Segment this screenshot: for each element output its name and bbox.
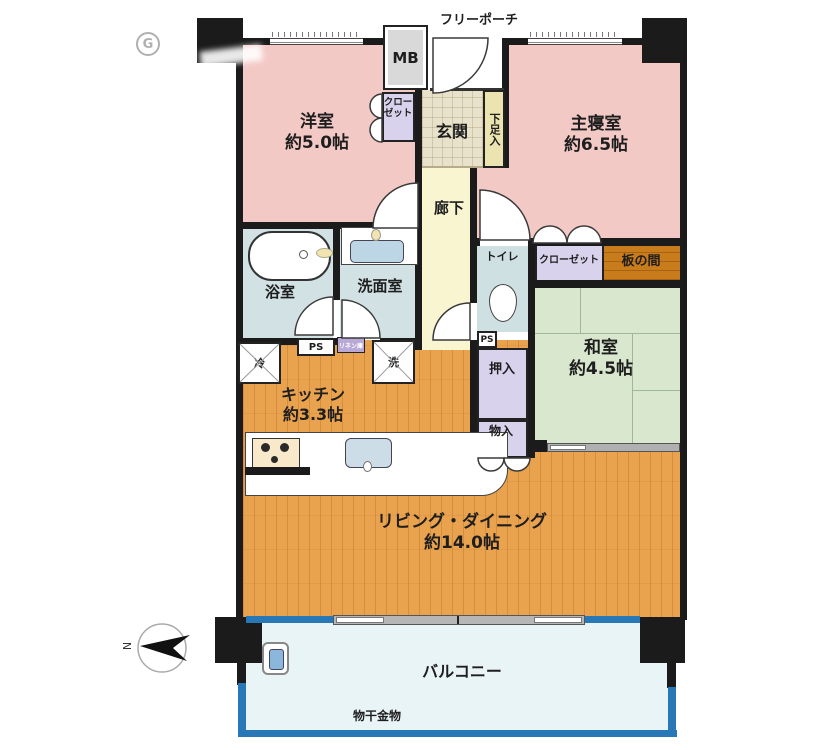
storage-name: 板の間 (621, 254, 660, 270)
wall (528, 238, 535, 458)
tatami-line (580, 288, 581, 333)
window-ticks (272, 32, 360, 37)
hallway-label: 廊下 (434, 199, 464, 218)
wood-alcove-label: 板の間 (621, 254, 660, 270)
window-western (270, 38, 363, 45)
room-name: 洗面室 (357, 277, 402, 296)
wall (680, 45, 687, 620)
hatch-inner (269, 649, 284, 670)
balcony-sliding-door (333, 615, 585, 625)
refrigerator-space: 冷 (238, 342, 281, 384)
entrance-step-line (422, 166, 483, 168)
sliding-pane (534, 617, 582, 623)
balcony-wall-right (668, 687, 676, 737)
room-master-bedroom-ext (477, 168, 508, 238)
pillar (642, 18, 687, 63)
free-porch-text: フリーポーチ (440, 13, 518, 29)
laundry-hardware-label: 物干金物 (353, 709, 401, 724)
toilet-label: トイレ (486, 250, 519, 264)
washroom-label: 洗面室 (357, 277, 402, 296)
room-size: 約5.0帖 (285, 133, 349, 154)
ps-label: PS (480, 335, 493, 345)
burner (261, 443, 270, 452)
wall (470, 168, 477, 303)
kitchen-sink-faucet (363, 461, 372, 472)
window-ticks (530, 32, 618, 37)
evacuation-hatch-icon (262, 642, 289, 675)
room-name: 和室 (569, 338, 633, 359)
linen-label: リネン庫 (339, 341, 363, 350)
hallway (422, 168, 470, 350)
room-size: 約3.3帖 (281, 405, 345, 425)
shoe-cabinet-label: 下足入 (486, 113, 502, 146)
japanese-room-label: 和室 約4.5帖 (569, 338, 633, 381)
balcony-wall-left (238, 683, 246, 737)
wall (237, 663, 246, 685)
balcony-wall-top-left (246, 616, 333, 623)
kitchen-label: キッチン 約3.3帖 (281, 385, 345, 425)
western-room-label: 洋室 約5.0帖 (285, 112, 349, 155)
small-storage-label: 物入 (489, 424, 513, 439)
closet-western-label: クローゼット (383, 98, 413, 120)
washer-label: 洗 (387, 354, 400, 370)
wall (667, 663, 676, 688)
wall (333, 228, 340, 300)
linen-cabinet: リネン庫 (337, 337, 365, 353)
compass-icon: N (121, 624, 190, 672)
window-master (528, 38, 622, 45)
sliding-pane (336, 617, 384, 623)
watermark-letter: G (143, 37, 154, 52)
pillar (640, 617, 685, 663)
bathroom-label: 浴室 (265, 283, 295, 302)
sliding-divider (457, 616, 459, 624)
room-name: トイレ (486, 250, 519, 264)
storage-name: クローゼット (539, 255, 599, 268)
room-name: 浴室 (265, 283, 295, 302)
compass-north-label: N (121, 642, 134, 650)
sliding-pane (550, 445, 586, 450)
futon-closet-oshiire (477, 348, 528, 420)
shoe-cabinet: 下足入 (483, 90, 505, 168)
wall (236, 45, 243, 617)
room-name: 玄関 (436, 122, 468, 142)
pillar (215, 617, 262, 663)
room-name: バルコニー (422, 662, 502, 682)
burner (271, 456, 278, 463)
bathtub-drain (299, 250, 308, 259)
room-name: キッチン (281, 385, 345, 405)
front-door-arc (433, 38, 488, 93)
storage-name: クローゼット (383, 98, 413, 120)
entrance-label: 玄関 (436, 122, 468, 142)
refrigerator-label: 冷 (253, 355, 266, 371)
futon-closet-label: 押入 (489, 362, 515, 378)
balcony-wall-top-right (585, 616, 640, 623)
room-name: 洋室 (285, 112, 349, 133)
washer-space: 洗 (372, 340, 415, 384)
room-name: リビング・ダイニング (377, 512, 547, 533)
storage-name: 押入 (489, 362, 515, 378)
meter-box: MB (383, 25, 428, 90)
bathtub-faucet (316, 248, 333, 258)
room-name: 廊下 (434, 199, 464, 218)
vanity-faucet (371, 229, 381, 241)
kitchen-half-wall (245, 467, 310, 475)
closet-master-label: クローゼット (539, 255, 599, 268)
room-size: 約14.0帖 (377, 533, 547, 554)
room-size: 約4.5帖 (569, 359, 633, 380)
storage-name: 物入 (489, 424, 513, 439)
balcony-wall-bottom (238, 730, 677, 737)
master-bedroom-label: 主寝室 約6.5帖 (564, 114, 628, 157)
floor-plan: 下足入 MB 冷 PS リネン庫 (0, 0, 836, 750)
wall (528, 280, 687, 288)
wall (530, 238, 687, 246)
vanity-sink-icon (350, 240, 404, 263)
wall (415, 88, 422, 350)
wall (528, 440, 547, 452)
pipe-space-1: PS (297, 338, 335, 356)
pipe-space-2: PS (477, 331, 497, 348)
note-text: 物干金物 (353, 709, 401, 724)
tatami-line (632, 390, 680, 391)
watermark-g: G (136, 32, 160, 56)
burner (280, 443, 289, 452)
tatami-line (533, 333, 680, 334)
balcony-label: バルコニー (422, 662, 502, 682)
meter-box-label: MB (392, 49, 418, 67)
free-porch-label: フリーポーチ (440, 13, 518, 29)
room-size: 約6.5帖 (564, 135, 628, 156)
room-name: 主寝室 (564, 114, 628, 135)
stove-icon (252, 438, 300, 468)
ps-label: PS (309, 342, 324, 353)
living-dining-label: リビング・ダイニング 約14.0帖 (377, 512, 547, 555)
japanese-room-sliding-door (547, 443, 680, 452)
